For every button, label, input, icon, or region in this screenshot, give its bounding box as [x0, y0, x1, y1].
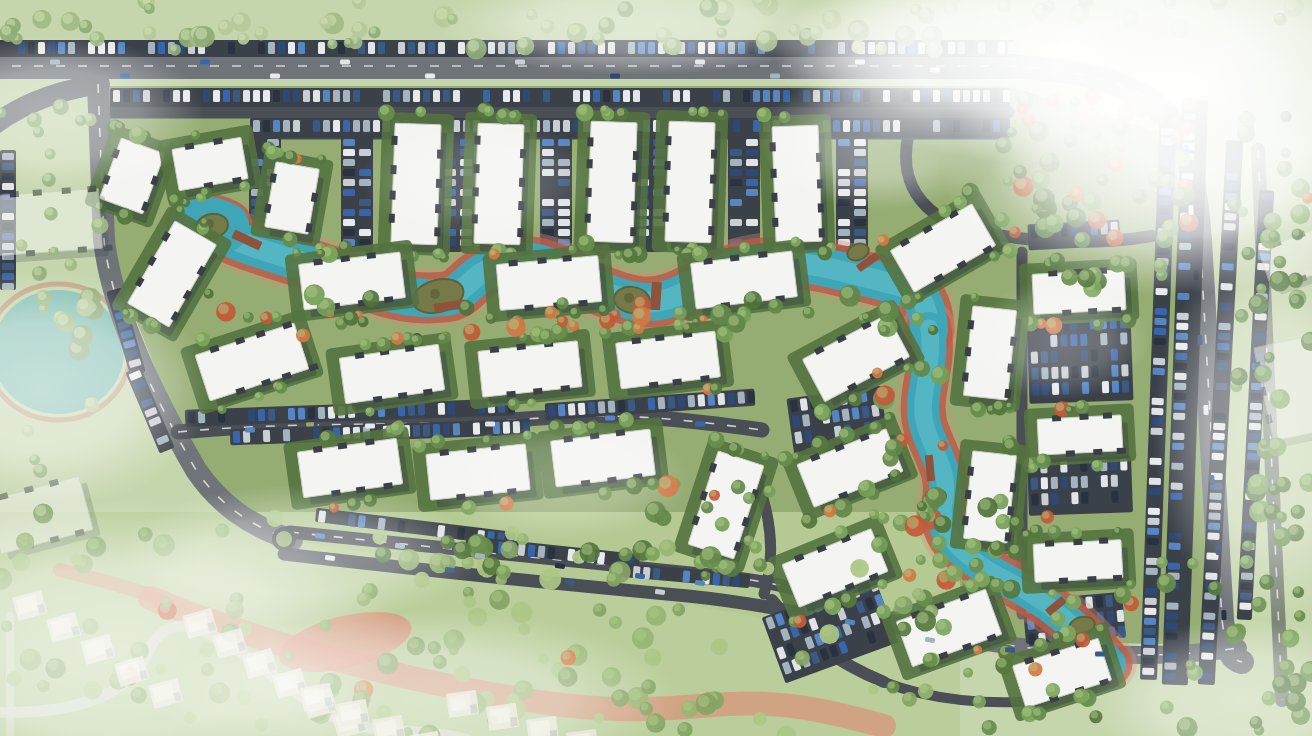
- atmosphere-wash: [0, 0, 1312, 736]
- aerial-view-svg: [0, 0, 1312, 736]
- masterplan-aerial-render: [0, 0, 1312, 736]
